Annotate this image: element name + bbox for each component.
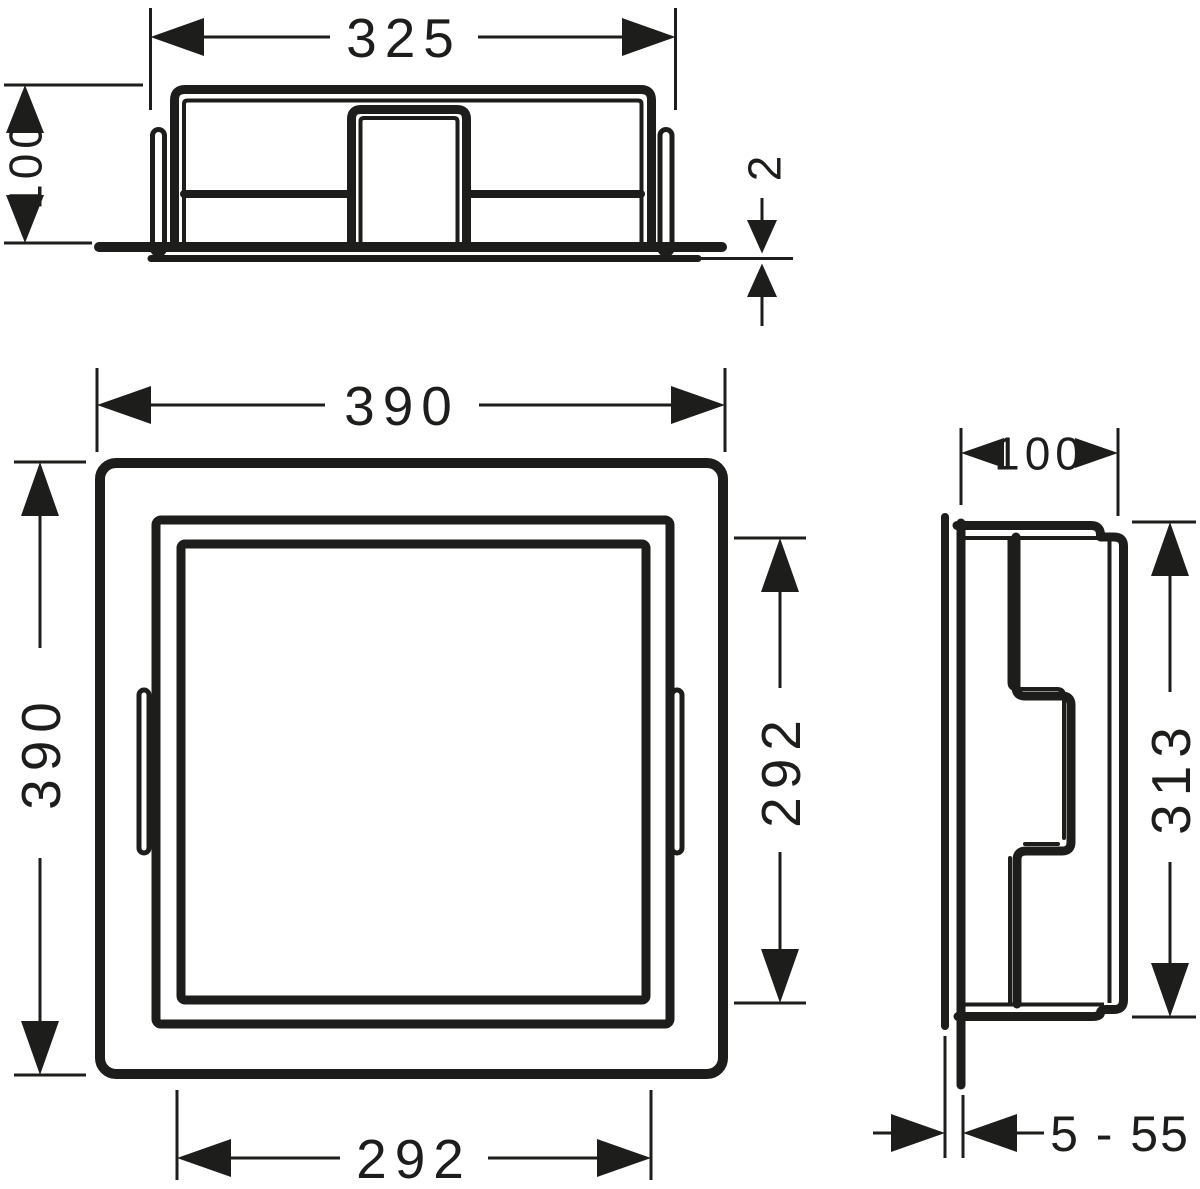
- body-inner-wall: [184, 101, 642, 248]
- side-depth-label: 100: [994, 428, 1086, 480]
- center-channel-outer: [352, 110, 467, 248]
- clip-right: [672, 690, 682, 853]
- top-view-extension-lines: [4, 8, 676, 243]
- mounting-spring-left: [153, 130, 165, 255]
- dimension-overall-width: 325: [151, 7, 676, 69]
- arrow-up-icon: [761, 538, 799, 592]
- arrow-right-icon: [671, 386, 725, 424]
- side-view: 100 313 5 - 55: [873, 428, 1200, 1162]
- outer-shell-profile: [957, 526, 1124, 1017]
- arrow-left-icon: [963, 1114, 1017, 1152]
- arrow-down-icon: [1151, 963, 1189, 1017]
- arrow-left-icon: [151, 18, 205, 56]
- dimension-collar-thickness: 2: [739, 151, 791, 326]
- arrow-down-icon: [761, 949, 799, 1003]
- top-depth-label: 100: [0, 118, 52, 210]
- dimension-outer-height: 390: [10, 462, 72, 1075]
- front-view: 390 390 292: [10, 368, 812, 1189]
- dimension-side-height: 313: [1140, 522, 1200, 1017]
- top-view-body: [99, 90, 793, 259]
- dimension-outer-width: 390: [97, 375, 725, 437]
- top-width-label: 325: [346, 7, 462, 69]
- outer-width-label: 390: [344, 375, 460, 437]
- opening-height-label: 292: [750, 712, 812, 828]
- arrow-right-icon: [622, 18, 676, 56]
- dimension-side-depth: 100: [961, 428, 1118, 480]
- side-height-label: 313: [1140, 719, 1200, 835]
- outer-height-label: 390: [10, 694, 72, 810]
- arrow-left-icon: [97, 386, 151, 424]
- opening-width-label: 292: [356, 1128, 472, 1189]
- side-view-body: [945, 517, 1124, 1085]
- arrow-right-icon: [891, 1114, 945, 1152]
- collar-thickness-label: 2: [739, 151, 791, 182]
- dimension-opening-width: 292: [177, 1128, 651, 1189]
- arrow-left-icon: [177, 1139, 231, 1177]
- dimension-top-depth: 100: [0, 85, 52, 243]
- opening-frame: [181, 544, 646, 1000]
- tile-thickness-label: 5 - 55: [1050, 1106, 1190, 1162]
- body-frame: [156, 520, 670, 1024]
- front-view-extension-lines: [14, 368, 806, 1180]
- mounting-spring-right: [660, 130, 672, 255]
- top-view: 325 100 2: [0, 7, 793, 326]
- arrow-up-icon: [1151, 522, 1189, 576]
- arrow-down-icon: [747, 220, 777, 254]
- clip-left: [139, 690, 149, 853]
- center-channel-inner: [361, 118, 458, 245]
- arrow-down-icon: [21, 1021, 59, 1075]
- front-view-frames: [100, 463, 723, 1074]
- dimension-opening-height: 292: [750, 538, 812, 1003]
- outer-frame: [100, 463, 723, 1074]
- technical-drawing-sheet: 325 100 2: [0, 0, 1200, 1189]
- dimension-tile-thickness: 5 - 55: [873, 1106, 1190, 1162]
- arrow-up-icon: [21, 462, 59, 516]
- drawing-canvas: 325 100 2: [0, 0, 1200, 1189]
- arrow-up-icon: [747, 264, 777, 298]
- arrow-right-icon: [597, 1139, 651, 1177]
